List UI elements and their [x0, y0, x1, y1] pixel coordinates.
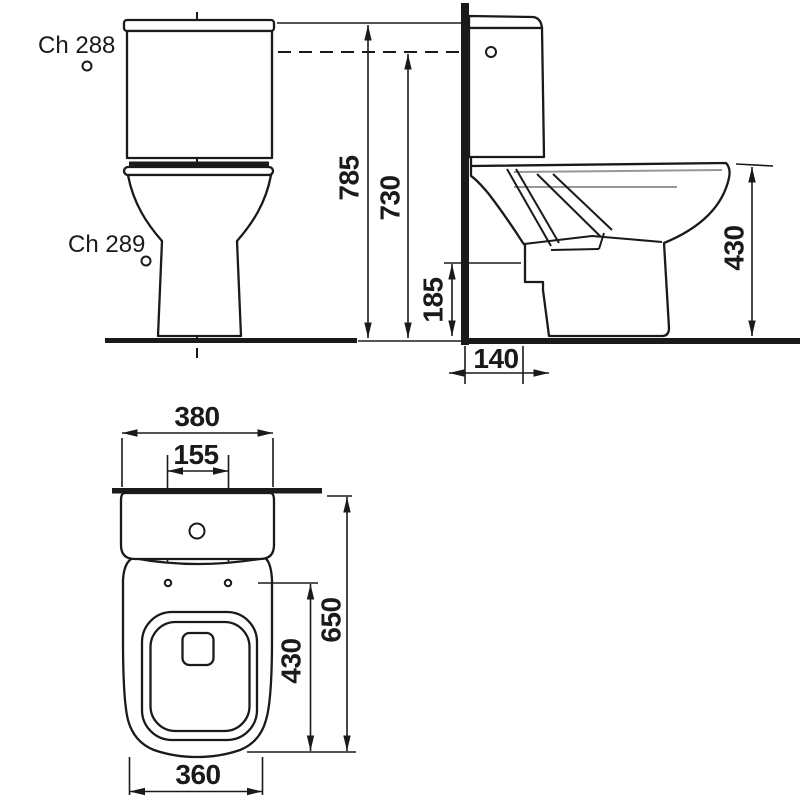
side-cistern-lid [469, 16, 542, 28]
front-seat-edge [124, 167, 273, 175]
label-ch289: Ch 289 [68, 231, 145, 258]
ch288-marker-circle [83, 62, 92, 71]
toilet-dimension-drawing: Ch 288 Ch 289 785 730 [0, 0, 800, 800]
dim-value-360: 360 [175, 759, 220, 790]
ext-line-rim [736, 164, 773, 166]
side-cistern-body [469, 28, 544, 157]
dim-value-430-plan: 430 [276, 638, 307, 683]
dim-value-185: 185 [418, 277, 449, 322]
dim-value-785: 785 [334, 155, 365, 200]
dim-value-155: 155 [173, 439, 218, 470]
technical-drawing-page: Ch 288 Ch 289 785 730 [0, 0, 800, 800]
front-bowl-pedestal [128, 175, 271, 336]
front-cistern-lid [124, 20, 274, 31]
height-dimensions: 785 730 [277, 23, 481, 341]
side-wall [461, 3, 469, 345]
dim-value-380: 380 [174, 401, 219, 432]
plan-flush-inlet [183, 633, 214, 665]
dim-value-430-side: 430 [719, 225, 750, 270]
label-ch288: Ch 288 [38, 32, 115, 59]
plan-cistern [121, 493, 274, 559]
ch289-marker-circle [142, 257, 151, 266]
front-ground-line [105, 338, 357, 343]
dim-value-140: 140 [473, 343, 518, 374]
front-cistern-body [127, 31, 272, 158]
dim-value-650: 650 [316, 597, 347, 642]
front-view: Ch 288 Ch 289 [38, 12, 357, 358]
dim-value-730: 730 [375, 175, 406, 220]
front-seat-band [129, 162, 269, 167]
plan-view: 380 155 650 430 [112, 401, 356, 795]
side-view: 430 185 140 [418, 3, 800, 384]
